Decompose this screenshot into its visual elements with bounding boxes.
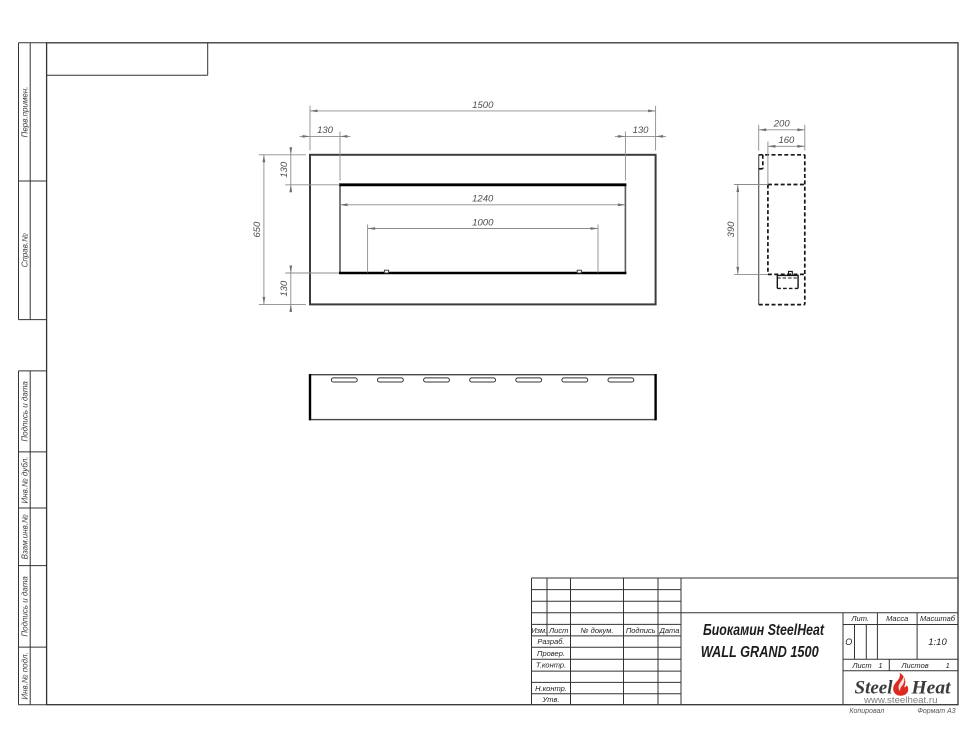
svg-text:Инв.№ дубл.: Инв.№ дубл. [21, 457, 30, 504]
svg-text:Утв.: Утв. [541, 695, 559, 704]
svg-text:Н.контр.: Н.контр. [535, 684, 567, 693]
svg-text:1: 1 [946, 661, 950, 670]
svg-text:390: 390 [726, 221, 737, 238]
svg-text:160: 160 [778, 135, 795, 146]
svg-text:Масса: Масса [886, 614, 908, 623]
svg-text:Лист: Лист [548, 626, 568, 635]
svg-text:Масштаб: Масштаб [920, 614, 956, 623]
svg-text:Инв.№ подл.: Инв.№ подл. [21, 652, 30, 699]
svg-text:200: 200 [773, 119, 791, 130]
svg-text:130: 130 [317, 125, 334, 136]
svg-text:Подпись: Подпись [626, 626, 656, 635]
svg-text:WALL GRAND 1500: WALL GRAND 1500 [701, 644, 819, 661]
svg-text:130: 130 [279, 161, 290, 178]
svg-text:Дата: Дата [659, 626, 680, 635]
svg-text:Подпись и дата: Подпись и дата [21, 576, 30, 637]
svg-text:Т.контр.: Т.контр. [536, 661, 566, 670]
svg-text:1500: 1500 [472, 100, 494, 111]
svg-text:650: 650 [252, 221, 263, 238]
svg-text:Взам.инв.№: Взам.инв.№ [21, 514, 30, 559]
svg-text:Формат А3: Формат А3 [917, 708, 955, 715]
svg-text:130: 130 [633, 125, 650, 136]
svg-text:Копировал: Копировал [849, 708, 884, 715]
svg-text:Разраб.: Разраб. [537, 637, 564, 646]
svg-text:Перв.примен.: Перв.примен. [21, 87, 30, 138]
svg-text:1:10: 1:10 [928, 637, 947, 648]
svg-text:Лит.: Лит. [850, 614, 869, 623]
svg-text:130: 130 [279, 280, 290, 297]
svg-text:№ докум.: № докум. [580, 626, 613, 635]
svg-text:Лист: Лист [851, 661, 871, 670]
svg-text:О: О [845, 637, 852, 647]
svg-text:Изм.: Изм. [531, 626, 547, 635]
svg-text:1: 1 [878, 661, 882, 670]
svg-text:Биокамин SteelHeat: Биокамин SteelHeat [703, 622, 825, 639]
svg-text:Провер.: Провер. [537, 649, 565, 658]
svg-text:Подпись и дата: Подпись и дата [21, 381, 30, 442]
svg-text:1000: 1000 [472, 217, 494, 228]
svg-text:www.steelheat.ru: www.steelheat.ru [863, 695, 938, 706]
svg-text:Справ.№: Справ.№ [21, 233, 30, 267]
svg-text:1240: 1240 [472, 194, 494, 205]
svg-text:Листов: Листов [900, 661, 928, 670]
